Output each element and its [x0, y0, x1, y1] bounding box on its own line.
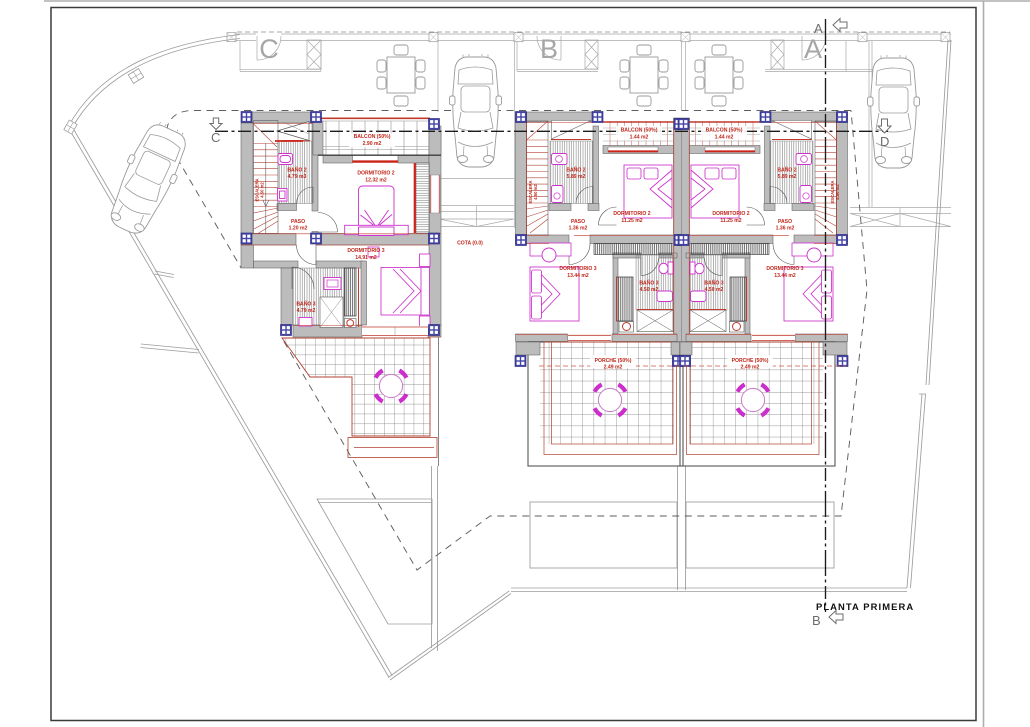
svg-text:BALCON (50%): BALCON (50%): [706, 128, 743, 134]
svg-text:12.32 m2: 12.32 m2: [365, 178, 387, 184]
svg-text:PORCHE (50%): PORCHE (50%): [595, 358, 632, 364]
svg-text:BAÑO 3: BAÑO 3: [639, 280, 658, 287]
svg-text:2.49 m2: 2.49 m2: [741, 365, 760, 371]
svg-text:DORMITORIO 3: DORMITORIO 3: [766, 266, 803, 272]
svg-text:COTA (0.0): COTA (0.0): [457, 241, 483, 247]
svg-text:A: A: [814, 21, 823, 36]
svg-text:BALCON (50%): BALCON (50%): [354, 134, 391, 140]
svg-text:1.20 m2: 1.20 m2: [289, 226, 308, 232]
svg-text:11.25 m2: 11.25 m2: [621, 218, 642, 224]
svg-text:2.49 m2: 2.49 m2: [604, 365, 623, 371]
svg-text:PLANTA PRIMERA: PLANTA PRIMERA: [816, 601, 914, 612]
svg-text:1.36 m2: 1.36 m2: [776, 226, 795, 232]
svg-text:4.50 m2: 4.50 m2: [640, 287, 659, 293]
svg-text:4.50 m2: 4.50 m2: [533, 184, 538, 200]
svg-text:A: A: [804, 34, 822, 64]
svg-text:13.44 m2: 13.44 m2: [774, 273, 796, 279]
svg-text:BAÑO 3: BAÑO 3: [296, 301, 315, 308]
svg-text:B: B: [540, 34, 558, 64]
svg-text:PASO: PASO: [778, 219, 792, 225]
svg-text:4.50 m2: 4.50 m2: [260, 182, 265, 198]
svg-text:PORCHE (50%): PORCHE (50%): [732, 358, 769, 364]
svg-text:4.50 m2: 4.50 m2: [705, 287, 724, 293]
svg-text:4.79 m2: 4.79 m2: [297, 308, 316, 314]
svg-text:DORMITORIO 2: DORMITORIO 2: [613, 211, 650, 217]
svg-text:PASO: PASO: [291, 219, 305, 225]
svg-text:4.50 m2: 4.50 m2: [835, 184, 840, 200]
svg-text:D: D: [880, 134, 889, 149]
svg-text:4.79 m3: 4.79 m3: [288, 174, 307, 180]
svg-text:DORMITORIO 3: DORMITORIO 3: [559, 266, 596, 272]
svg-text:13.44 m2: 13.44 m2: [567, 273, 589, 279]
svg-text:BAÑO 3: BAÑO 3: [704, 280, 723, 287]
svg-text:BAÑO 2: BAÑO 2: [566, 167, 585, 174]
svg-text:C: C: [259, 34, 279, 64]
svg-text:1.44 m2: 1.44 m2: [630, 135, 649, 141]
svg-text:PASO: PASO: [571, 219, 585, 225]
svg-text:5.89 m2: 5.89 m2: [567, 174, 586, 180]
svg-text:DORMITORIO 2: DORMITORIO 2: [357, 171, 394, 177]
svg-text:1.36 m2: 1.36 m2: [569, 226, 588, 232]
svg-text:1.44 m2: 1.44 m2: [715, 135, 734, 141]
svg-text:5.89 m2: 5.89 m2: [778, 174, 797, 180]
svg-text:DORMITORIO 2: DORMITORIO 2: [712, 211, 749, 217]
svg-text:C: C: [211, 130, 220, 145]
svg-text:DORMITORIO 3: DORMITORIO 3: [347, 248, 384, 254]
svg-text:B: B: [812, 613, 821, 628]
svg-text:BALCON (50%): BALCON (50%): [621, 128, 658, 134]
svg-text:2.90 m2: 2.90 m2: [363, 141, 382, 147]
svg-text:14.91 m2: 14.91 m2: [355, 255, 377, 261]
svg-text:11.25 m2: 11.25 m2: [720, 218, 741, 224]
svg-text:BAÑO 2: BAÑO 2: [777, 167, 796, 174]
svg-text:BAÑO 2: BAÑO 2: [287, 167, 306, 174]
